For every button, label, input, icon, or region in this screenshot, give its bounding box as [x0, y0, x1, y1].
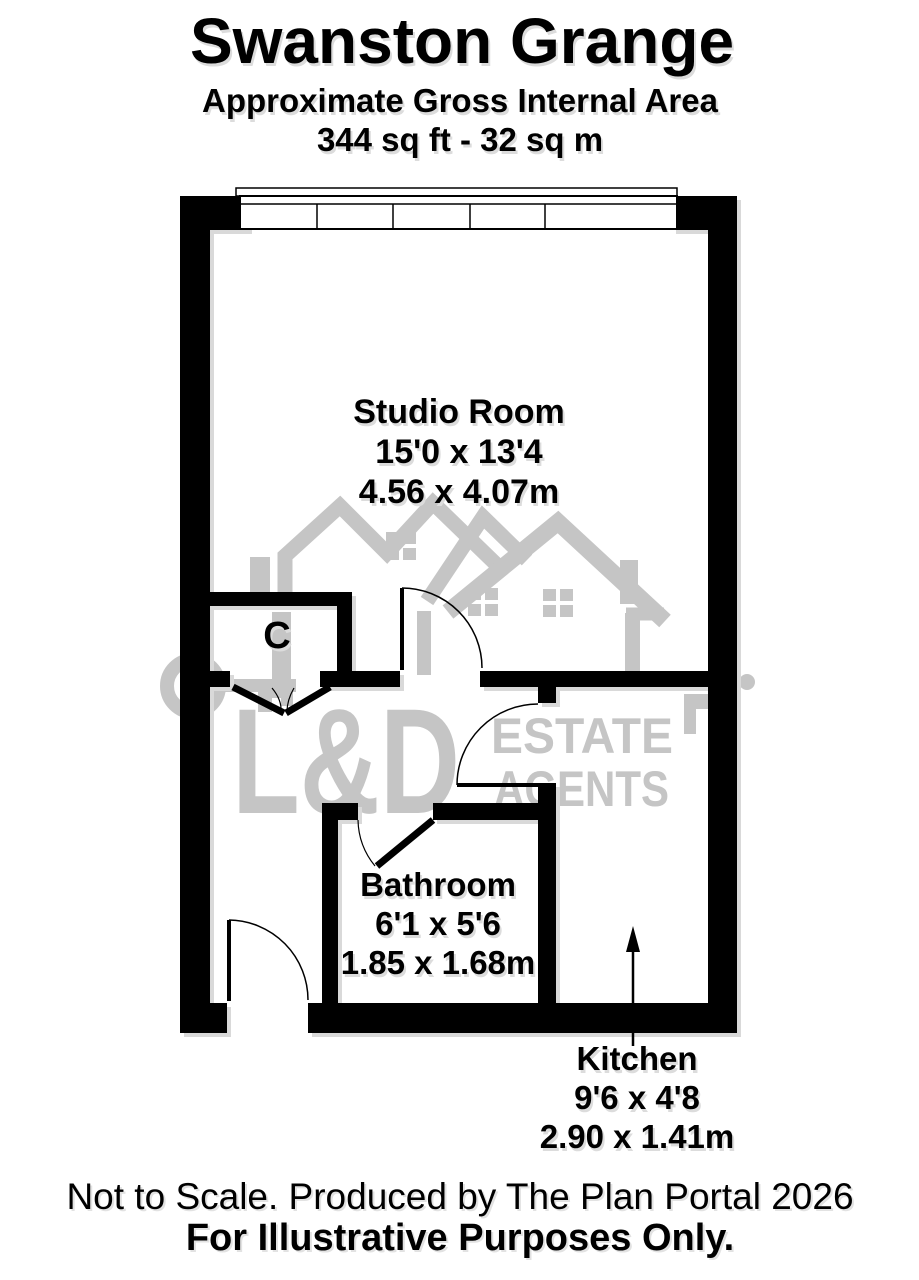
- kitchen-imperial: 9'6 x 4'8: [540, 1079, 735, 1118]
- kitchen-name: Kitchen: [540, 1040, 735, 1079]
- watermark-flag-icon: [684, 694, 711, 734]
- floorplan-drawing: L&D ESTATE AGENTS: [0, 0, 919, 1280]
- wall-middle-b: [320, 671, 400, 687]
- wall-bathroom-left: [322, 803, 338, 1003]
- studio-room-name: Studio Room: [353, 392, 565, 432]
- wall-bottom-right: [308, 1003, 737, 1033]
- disclaimer-line1: Not to Scale. Produced by The Plan Porta…: [66, 1176, 853, 1219]
- floorplan-page: L&D ESTATE AGENTS: [0, 0, 919, 1280]
- wall-closet-right: [337, 592, 352, 687]
- bathroom-imperial: 6'1 x 5'6: [341, 905, 536, 944]
- watermark-dot-icon: [739, 674, 755, 690]
- closet-label: C: [263, 614, 290, 658]
- page-title: Swanston Grange: [190, 4, 734, 78]
- window-top: [236, 188, 677, 229]
- studio-room-label: Studio Room 15'0 x 13'4 4.56 x 4.07m: [353, 392, 565, 512]
- wall-top-left-corner: [180, 196, 248, 230]
- gross-area-value: 344 sq ft - 32 sq m: [317, 121, 603, 159]
- disclaimer-line2: For Illustrative Purposes Only.: [186, 1216, 734, 1260]
- wall-bottom-left: [180, 1003, 227, 1033]
- bathroom-label: Bathroom 6'1 x 5'6 1.85 x 1.68m: [341, 866, 536, 983]
- studio-room-metric: 4.56 x 4.07m: [353, 472, 565, 512]
- entrance-door: [229, 920, 308, 1001]
- wall-right: [708, 196, 737, 1033]
- wall-bathroom-top-b: [433, 803, 556, 820]
- wall-closet-top: [205, 592, 350, 606]
- wall-middle-a: [205, 671, 230, 687]
- page-subtitle: Approximate Gross Internal Area: [202, 82, 718, 120]
- wall-left: [180, 196, 210, 1033]
- wall-kitchen-stub: [538, 687, 556, 703]
- studio-room-imperial: 15'0 x 13'4: [353, 432, 565, 472]
- bathroom-metric: 1.85 x 1.68m: [341, 944, 536, 983]
- watermark-line1: ESTATE: [491, 708, 673, 764]
- bathroom-name: Bathroom: [341, 866, 536, 905]
- wall-middle-c: [480, 671, 708, 687]
- kitchen-metric: 2.90 x 1.41m: [540, 1118, 735, 1157]
- kitchen-label: Kitchen 9'6 x 4'8 2.90 x 1.41m: [540, 1040, 735, 1157]
- wall-bathroom-top-a: [322, 803, 358, 820]
- watermark-window-icon: [543, 589, 573, 617]
